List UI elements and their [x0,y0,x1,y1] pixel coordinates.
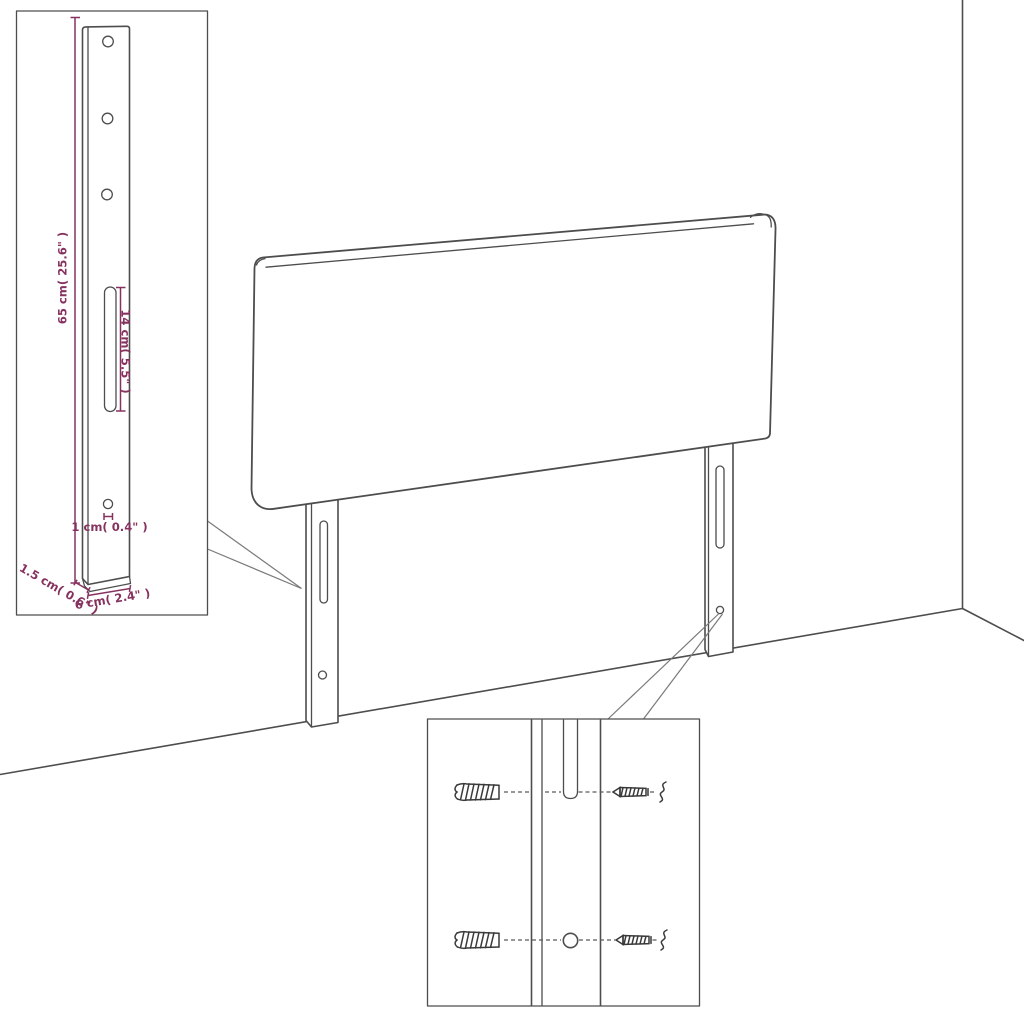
headboard-outline [252,215,776,510]
leg-dimension-detail-inset: 65 cm( 25.6" ) 14 cm( 5.5" ) 1 cm( 0.4" … [17,11,208,617]
left-leg-body [306,499,338,728]
right-mounting-leg [705,444,733,657]
dimension-label-slot-length: 14 cm( 5.5" ) [119,309,133,393]
floor-line-right [963,609,1024,641]
right-leg-body [705,444,733,657]
dimension-label-hole-diameter: 1 cm( 0.4" ) [71,520,147,534]
callout-lines-left-inset [208,521,302,589]
callout-line [644,614,723,719]
diagram-canvas: 65 cm( 25.6" ) 14 cm( 5.5" ) 1 cm( 0.4" … [0,0,1024,1024]
detail-leg-body [83,26,130,584]
dimension-label-leg-height: 65 cm( 25.6" ) [56,232,70,324]
mounting-hardware-detail-inset [428,719,700,1006]
headboard-panel [252,214,776,509]
left-mounting-leg [306,499,338,728]
assembly-diagram: 65 cm( 25.6" ) 14 cm( 5.5" ) 1 cm( 0.4" … [0,0,1024,1024]
